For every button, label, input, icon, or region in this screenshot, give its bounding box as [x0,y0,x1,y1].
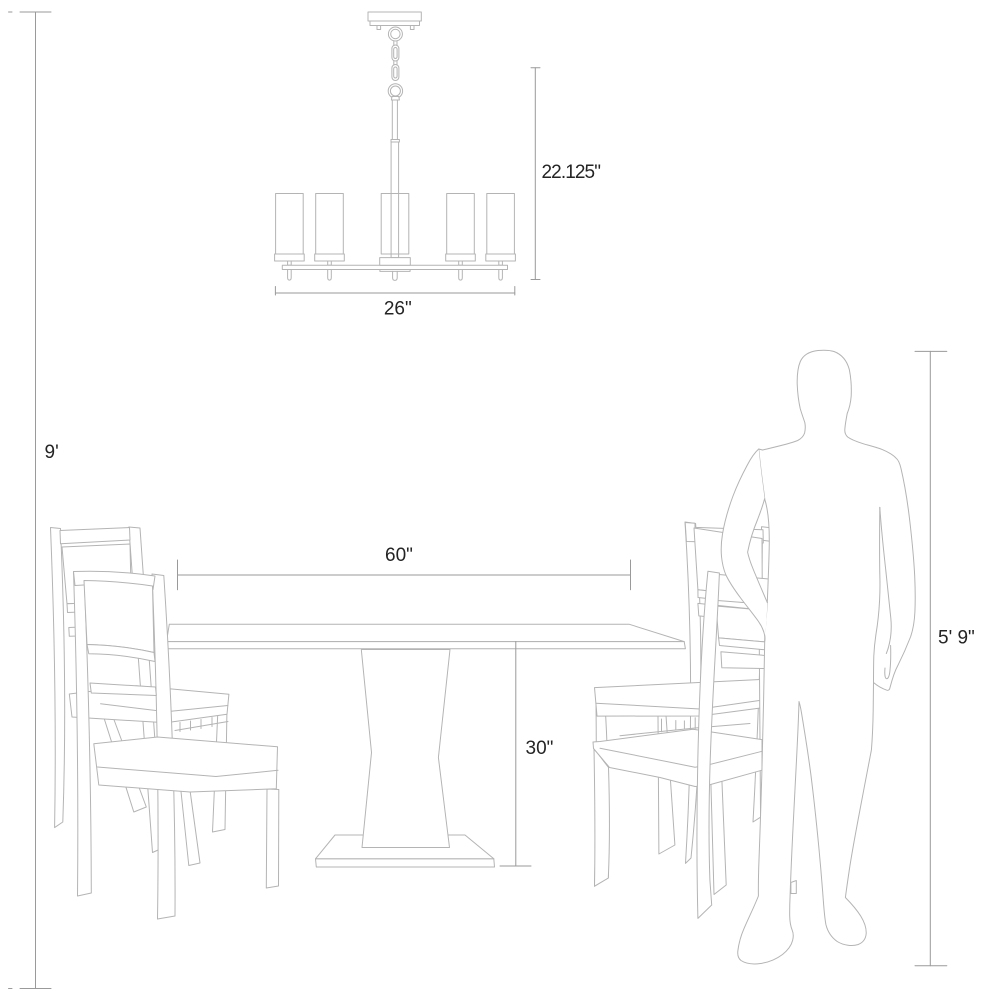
svg-text:60": 60" [385,545,413,566]
svg-text:30": 30" [526,738,554,759]
svg-text:22.125": 22.125" [542,162,601,183]
svg-text:9': 9' [45,442,59,463]
svg-text:5' 9": 5' 9" [938,628,975,649]
svg-text:26": 26" [384,299,412,320]
